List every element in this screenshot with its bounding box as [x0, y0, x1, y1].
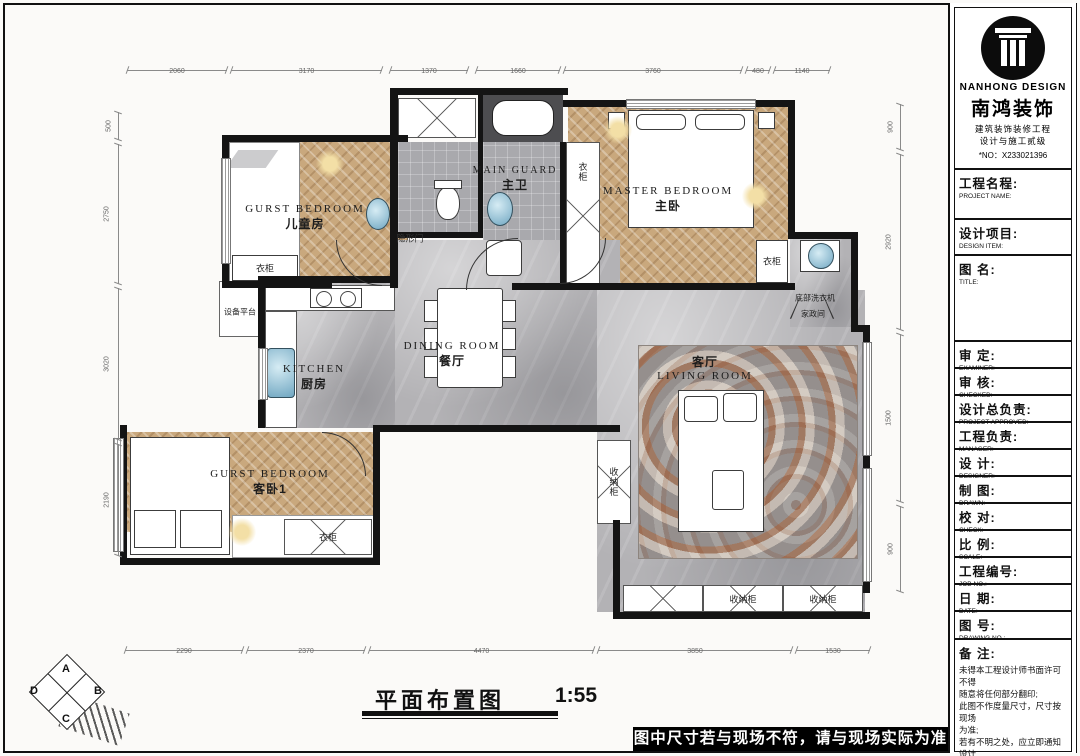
window [258, 348, 268, 400]
field-zh: 图 号: [959, 615, 1067, 634]
dim-value: 500 [106, 120, 113, 132]
wall [788, 100, 795, 239]
title-block: NANHONG DESIGN 南鸿装饰 建筑装饰装修工程 设计与施工贰级 *NO… [948, 3, 1076, 753]
remark-line: 此图不作度量尺寸，尺寸按现场 [959, 700, 1067, 724]
label-equipment-platform: 设备平台 [224, 307, 256, 318]
label-wardrobe: 衣柜 [319, 531, 337, 544]
ceiling-light [742, 182, 770, 210]
wall [851, 232, 858, 332]
ceiling-light [228, 518, 256, 546]
dim-left: 500 [106, 112, 119, 140]
room-en: GURST BEDROOM [210, 468, 330, 480]
dim-value: 480 [752, 68, 764, 75]
remarks-cell: 备 注: 未得本工程设计师书面许可不得 随意将任何部分翻印; 此图不作度量尺寸，… [954, 639, 1072, 752]
master-pillow [636, 114, 686, 130]
field-scale: 比 例: SCALE: [954, 530, 1072, 557]
dim-top: 1370 [390, 58, 468, 71]
dim-bottom: 2370 [247, 638, 365, 651]
remark-line: 为准; [959, 724, 1067, 736]
room-label-dining: DINING ROOM 餐厅 [404, 340, 501, 369]
dim-value: 3020 [104, 356, 111, 372]
coffee-table [712, 470, 744, 510]
label-wardrobe: 衣柜 [763, 255, 781, 268]
dim-value: 2370 [298, 648, 314, 655]
wall [616, 612, 870, 619]
dim-value: 1660 [510, 68, 526, 75]
dim-value: 1140 [794, 68, 809, 75]
nightstand [758, 112, 775, 129]
field-zh: 制 图: [959, 480, 1067, 499]
site-dimension-notice: 图中尺寸若与现场不符，请与现场实际为准 [633, 727, 948, 751]
field-checked: 审 核: CHECKED: [954, 368, 1072, 395]
room-en: GURST BEDROOM [245, 203, 365, 215]
field-zh: 审 定: [959, 345, 1067, 364]
remark-line: 未得本工程设计师书面许可不得 [959, 664, 1067, 688]
field-zh: 日 期: [959, 588, 1067, 607]
remark-line: 若有不明之处，应立即通知设计 [959, 736, 1067, 756]
dim-value: 4470 [474, 648, 490, 655]
field-date: 日 期: DATE: [954, 584, 1072, 611]
nanhong-column-logo-icon [981, 16, 1045, 80]
field-zh: 工程名程: [959, 173, 1067, 192]
toilet-tank [434, 180, 462, 189]
field-job-no: 工程编号: JOB NO.: [954, 557, 1072, 584]
wall [390, 88, 568, 95]
dim-bottom: 3850 [598, 638, 792, 651]
wall [390, 88, 398, 142]
window [626, 99, 756, 109]
remarks-title: 备 注: [959, 643, 1067, 662]
compass-letter-b: B [94, 685, 102, 697]
wall [120, 558, 380, 565]
room-zh: 客厅 [657, 353, 753, 370]
field-en: DESIGN ITEM: [959, 243, 1067, 250]
dim-value: 2920 [886, 234, 893, 250]
room-label-living: 客厅 LIVING ROOM [657, 353, 753, 382]
sofa-cushion [723, 393, 757, 422]
wall [620, 283, 795, 290]
label-wardrobe: 衣柜 [577, 162, 590, 182]
plan-scale: 1:55 [555, 684, 597, 708]
dim-value: 2190 [104, 492, 111, 508]
burner-icon [340, 291, 356, 307]
dim-value: 2290 [176, 648, 192, 655]
dim-value: 1370 [421, 68, 437, 75]
wash-basin [487, 192, 513, 226]
dim-bottom: 2290 [125, 638, 243, 651]
room-en: KITCHEN [283, 363, 345, 375]
remark-line: 随意将任何部分翻印; [959, 688, 1067, 700]
certificate-number: *NO：X233021396 [955, 150, 1071, 161]
dim-right: 2920 [888, 154, 901, 330]
dining-chair [502, 328, 516, 350]
dining-chair [502, 356, 516, 378]
storage-row [623, 585, 703, 612]
wall [373, 425, 620, 432]
ceiling-light [316, 150, 344, 178]
drawing-sheet: GURST BEDROOM 儿童房 MAIN GUARD 主卫 MASTER B… [0, 0, 1080, 756]
dim-bottom: 1530 [796, 638, 870, 651]
field-zh: 校 对: [959, 507, 1067, 526]
dim-right: 900 [888, 506, 901, 592]
dim-top: 3760 [564, 58, 742, 71]
room-zh: 厨房 [283, 375, 345, 392]
room-zh: 餐厅 [404, 352, 501, 369]
field-project-name: 工程名程: PROJECT NAME: [954, 169, 1072, 219]
guest1-pillow [180, 510, 222, 548]
room-label-children: GURST BEDROOM 儿童房 [245, 203, 365, 232]
wash-basin [366, 198, 390, 230]
field-designer: 设 计: DESIGNER: [954, 449, 1072, 476]
label-storage: 收纳柜 [809, 593, 836, 606]
bathtub [492, 100, 554, 136]
compass-letter-a: A [62, 663, 70, 675]
dining-table [437, 288, 503, 388]
label-storage: 收纳柜 [608, 467, 621, 497]
dim-value: 900 [888, 543, 895, 555]
dim-top: 1660 [476, 58, 560, 71]
room-en: LIVING ROOM [657, 370, 753, 382]
children-closet [398, 98, 476, 138]
dim-value: 3170 [299, 68, 315, 75]
field-zh: 设计项目: [959, 223, 1067, 242]
field-manager: 工程负责: MANAGER: [954, 422, 1072, 449]
sofa-cushion [684, 396, 718, 422]
room-label-main-guard: MAIN GUARD 主卫 [473, 165, 558, 193]
wall [788, 232, 858, 239]
label-storage: 收纳柜 [729, 593, 756, 606]
room-label-master: MASTER BEDROOM 主卧 [603, 185, 733, 214]
dim-bottom: 4470 [369, 638, 594, 651]
room-en: MASTER BEDROOM [603, 185, 733, 197]
field-drawing-no: 图 号: DRAWING NO.: [954, 611, 1072, 639]
wall [222, 135, 408, 142]
compass-letter-d: D [30, 685, 38, 697]
burner-icon [316, 291, 332, 307]
dim-top: 3170 [231, 58, 382, 71]
brand-name-en: NANHONG DESIGN [955, 82, 1071, 93]
dining-chair [502, 300, 516, 322]
dim-right: 900 [888, 104, 901, 150]
dim-value: 1530 [825, 648, 841, 655]
room-label-kitchen: KITCHEN 厨房 [283, 363, 345, 392]
orientation-key: A B C D [22, 655, 112, 745]
field-zh: 审 核: [959, 372, 1067, 391]
dim-value: 2060 [169, 68, 185, 75]
dim-left: 3020 [106, 288, 119, 440]
room-en: MAIN GUARD [473, 165, 558, 176]
washer-drum-icon [808, 243, 834, 269]
field-en: PROJECT NAME: [959, 193, 1067, 200]
certification-line1: 建筑装饰装修工程 [955, 123, 1071, 135]
dim-right: 1500 [888, 334, 901, 502]
room-zh: 主卧 [603, 197, 733, 214]
ceiling-light [604, 116, 632, 144]
room-en: DINING ROOM [404, 340, 501, 352]
master-pillow [695, 114, 745, 130]
field-zh: 工程负责: [959, 426, 1067, 445]
dim-value: 2750 [104, 206, 111, 222]
room-label-guest1: GURST BEDROOM 客卧1 [210, 468, 330, 497]
dim-left: 2190 [106, 444, 119, 556]
label-laundry-room: 家政间 [801, 309, 825, 320]
room-zh: 客卧1 [210, 480, 330, 497]
field-zh: 设计总负责: [959, 399, 1067, 418]
room-zh: 儿童房 [245, 215, 365, 232]
field-zh: 图 名: [959, 259, 1067, 278]
certification-line2: 设计与施工贰级 [955, 135, 1071, 147]
label-hidden-door: 隐形门 [396, 232, 423, 245]
window [862, 342, 872, 456]
label-washer: 底部洗衣机 [795, 293, 835, 304]
guest1-pillow [134, 510, 176, 548]
dim-value: 3850 [687, 648, 703, 655]
room-zh: 主卫 [473, 176, 558, 193]
field-zh: 比 例: [959, 534, 1067, 553]
title-underline-thin [362, 718, 558, 719]
dim-value: 1500 [886, 410, 893, 426]
field-en: TITLE: [959, 279, 1067, 286]
field-drawn: 制 图: DRAWN: [954, 476, 1072, 503]
compass-letter-c: C [62, 713, 70, 725]
field-zh: 设 计: [959, 453, 1067, 472]
field-title: 图 名: TITLE: [954, 255, 1072, 341]
field-project-approved: 设计总负责: PROJECT APPROVED: [954, 395, 1072, 422]
wall [613, 520, 620, 619]
field-examiner: 审 定: EXAMINER: [954, 341, 1072, 368]
wall [390, 142, 398, 288]
dim-top: 1140 [774, 58, 830, 71]
dim-value: 3760 [645, 68, 661, 75]
dining-chair [424, 300, 438, 322]
field-design-item: 设计项目: DESIGN ITEM: [954, 219, 1072, 255]
field-check: 校 对: CHECK: [954, 503, 1072, 530]
dim-value: 900 [888, 121, 895, 133]
label-wardrobe: 衣柜 [256, 262, 274, 275]
wall [512, 283, 620, 290]
dim-left: 2750 [106, 144, 119, 284]
toilet [436, 186, 460, 220]
window [862, 468, 872, 582]
title-underline [362, 711, 558, 716]
wall [373, 432, 380, 565]
brand-name-zh: 南鸿装饰 [955, 94, 1071, 121]
field-zh: 工程编号: [959, 561, 1067, 580]
window [221, 158, 231, 264]
dim-top: 480 [746, 58, 770, 71]
dim-top: 2060 [127, 58, 227, 71]
logo-cell: NANHONG DESIGN 南鸿装饰 建筑装饰装修工程 设计与施工贰级 *NO… [954, 7, 1072, 169]
